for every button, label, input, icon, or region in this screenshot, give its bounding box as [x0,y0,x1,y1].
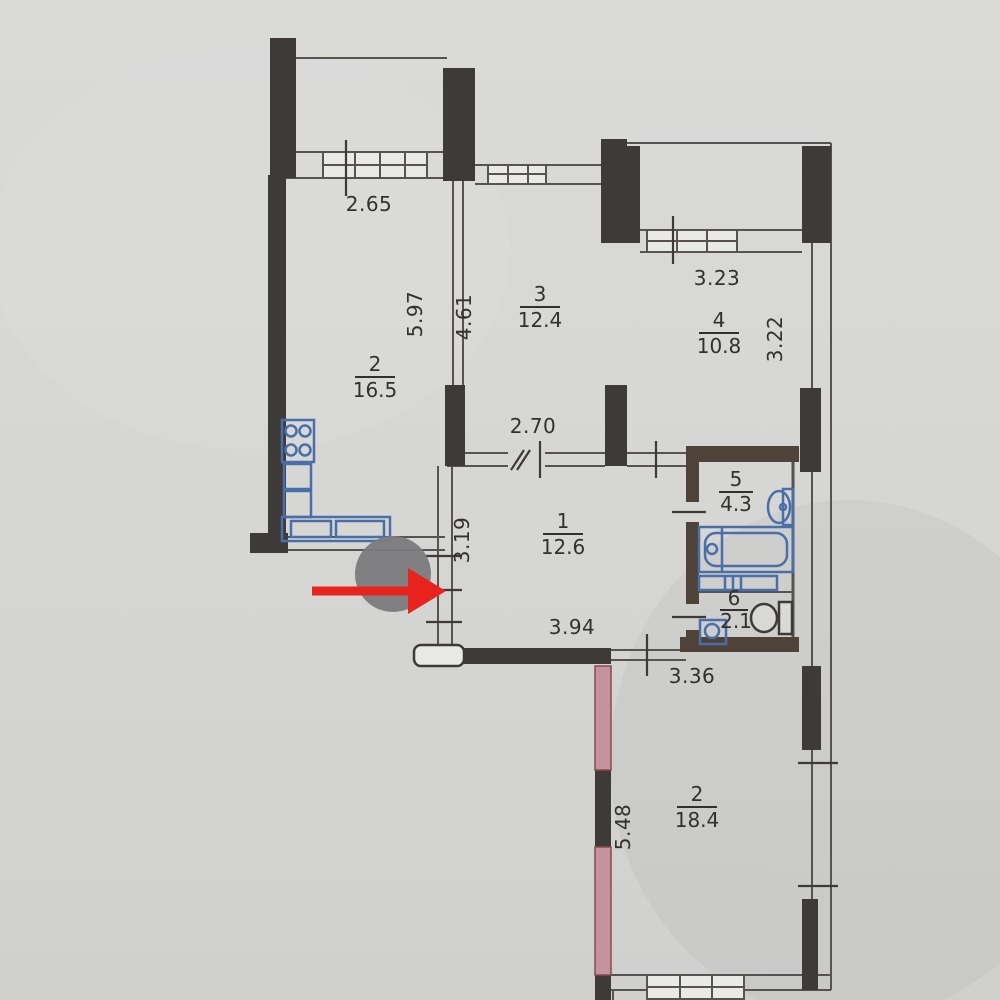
entry-threshold [414,645,464,666]
dim-lower-depth: 5.48 [611,804,635,851]
bathroom-bottom-wall [680,637,799,652]
room-kitchen-area: 16.5 [353,378,398,402]
toilet-icon [751,602,792,634]
lower-room-window [647,975,744,999]
room4-window [647,230,737,252]
balcony-left-pillar [270,38,296,178]
lower-left-wall-dark-bottom [595,975,611,1000]
dim-lower-top: 3.36 [669,664,716,688]
hall-bottom-wall [460,648,611,664]
right-mid-pillar [800,388,821,472]
room-lower-number: 2 [691,782,704,806]
pink-wall-lower [595,847,611,975]
room3-room4-bottom-pillar [605,385,627,466]
toilet-tank [779,602,792,634]
pink-wall-upper [595,666,611,770]
room-bath-number: 5 [730,467,743,491]
room-wc-number: 6 [728,586,741,610]
floor-plan-scan: 2.65 5.97 4.61 3.23 3.22 2.70 3.19 3.94 … [0,0,1000,1000]
room-kitchen-number: 2 [369,352,382,376]
room4-balcony-right-pillar [802,146,831,243]
top-center-pillar [443,68,475,181]
kitchen-hall-pillar [445,385,465,466]
lower-left-wall-dark-mid [595,770,611,847]
lower-right-pillar-top [802,666,821,750]
dim-room4-balcony: 3.23 [694,266,741,290]
dim-kitchen-window: 2.65 [346,192,393,216]
room-hall-area: 12.6 [541,535,586,559]
room-4-number: 4 [713,308,726,332]
dim-room3-depth: 4.61 [452,294,476,341]
floor-plan-image: 2.65 5.97 4.61 3.23 3.22 2.70 3.19 3.94 … [0,0,1000,1000]
bathroom-left-wall-a [686,462,699,502]
kitchen-window [323,152,427,178]
room-bath-area: 4.3 [720,492,752,516]
dim-room4-depth: 3.22 [763,316,787,363]
dim-kitchen-depth: 5.97 [403,291,427,338]
room-wc-area: 2.1 [720,609,752,633]
room-3-number: 3 [534,282,547,306]
dim-hall-left: 3.19 [450,517,474,564]
room4-balcony-left-pillar [614,146,640,243]
room-3-area: 12.4 [518,308,563,332]
dim-hall-bottom: 3.94 [549,615,596,639]
room-hall-number: 1 [557,509,570,533]
dim-hall-top: 2.70 [510,414,557,438]
bathroom-left-wall-b [686,522,699,604]
room3-window [488,165,546,184]
lower-right-pillar-bottom [802,899,818,990]
bathroom-top-wall [686,446,799,462]
paper-sheen [0,50,510,450]
room-4-area: 10.8 [697,334,742,358]
room-lower-area: 18.4 [675,808,720,832]
toilet-bowl [751,604,777,632]
